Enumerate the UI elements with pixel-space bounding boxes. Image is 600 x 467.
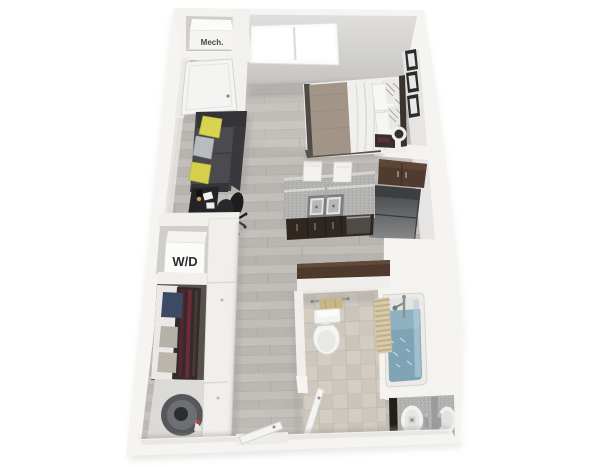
- svg-text:W/D: W/D: [172, 254, 197, 269]
- svg-text:Mech.: Mech.: [201, 38, 224, 47]
